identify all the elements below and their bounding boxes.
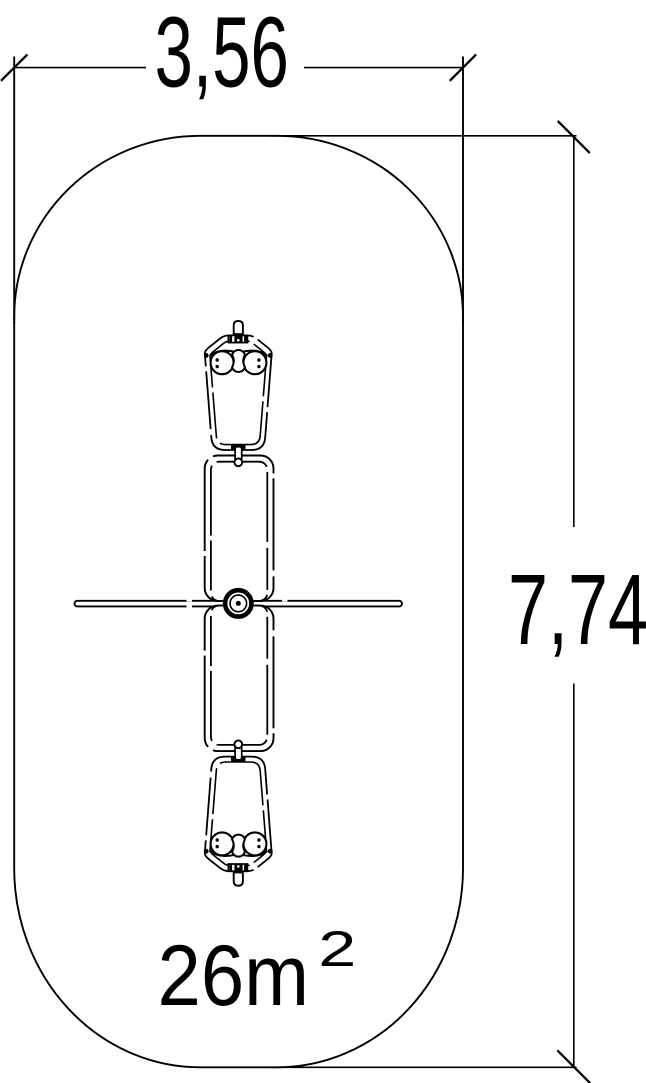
svg-text:3,56: 3,56 xyxy=(155,0,290,109)
svg-text:26m: 26m xyxy=(158,928,310,1024)
svg-text:2: 2 xyxy=(318,921,356,977)
svg-text:7,74: 7,74 xyxy=(508,554,646,666)
